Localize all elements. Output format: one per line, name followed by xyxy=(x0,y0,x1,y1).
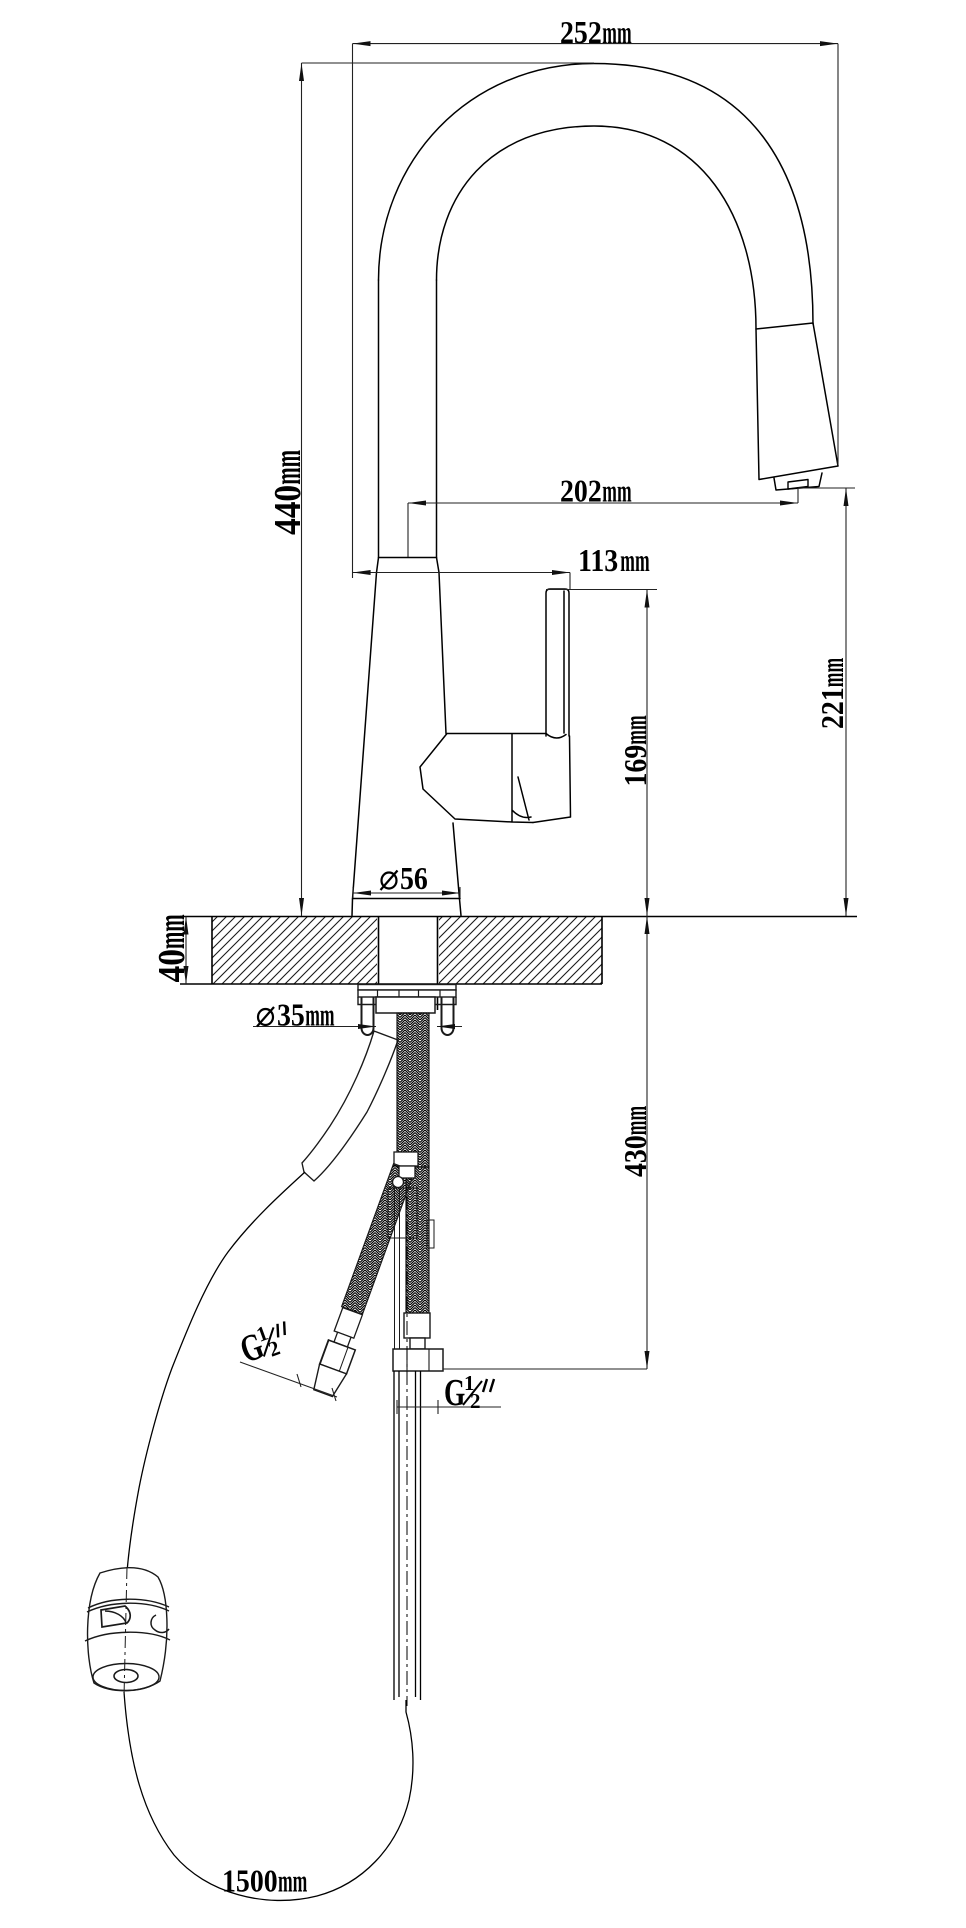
svg-text:440: 440 xyxy=(266,485,308,535)
svg-text:202: 202 xyxy=(560,474,602,509)
svg-text:mm: mm xyxy=(267,450,309,485)
svg-text:mm: mm xyxy=(602,14,632,50)
svg-text:113: 113 xyxy=(578,543,618,578)
svg-text:mm: mm xyxy=(151,914,193,949)
svg-text:40: 40 xyxy=(150,949,192,982)
svg-text:mm: mm xyxy=(305,997,335,1033)
svg-text:G: G xyxy=(444,1372,465,1414)
svg-text:430: 430 xyxy=(618,1135,653,1177)
svg-text:221: 221 xyxy=(815,687,850,729)
svg-text:169: 169 xyxy=(618,745,653,787)
svg-text:35: 35 xyxy=(277,998,305,1033)
svg-text:1500: 1500 xyxy=(222,1864,278,1899)
svg-text:2: 2 xyxy=(470,1389,481,1413)
svg-text:mm: mm xyxy=(602,473,632,509)
svg-text:56: 56 xyxy=(400,861,428,896)
svg-text:mm: mm xyxy=(278,1863,308,1899)
svg-text:mm: mm xyxy=(620,542,650,578)
svg-text:252: 252 xyxy=(560,15,602,50)
svg-text:mm: mm xyxy=(814,658,850,688)
svg-text:mm: mm xyxy=(617,1106,653,1136)
svg-text:mm: mm xyxy=(617,715,653,745)
